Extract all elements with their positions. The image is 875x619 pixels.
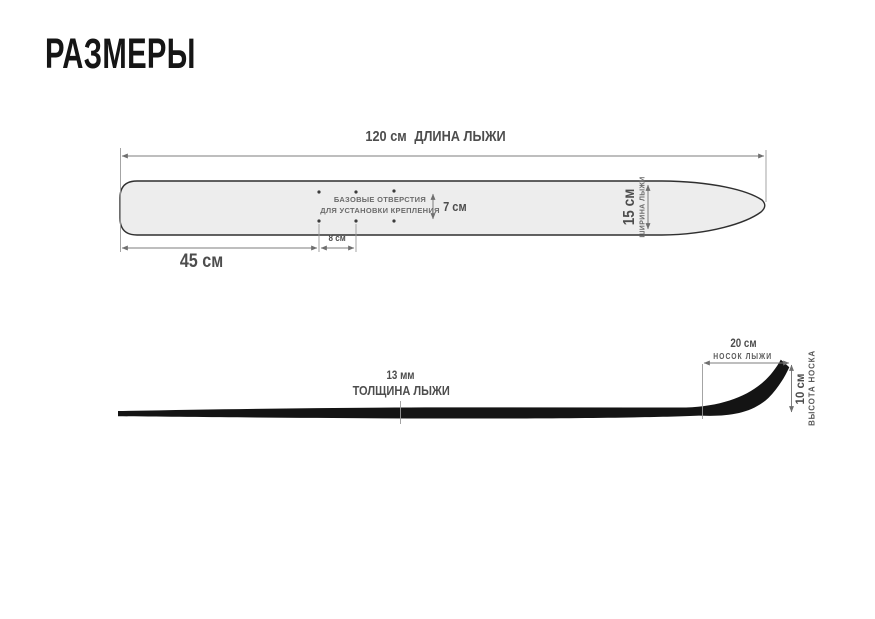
width-value: 15 см	[621, 189, 639, 226]
mounting-holes-note-line2: ДЛЯ УСТАНОВКИ КРЕПЛЕНИЯ	[310, 206, 450, 217]
mounting-holes-note-line1: БАЗОВЫЕ ОТВЕРСТИЯ	[310, 195, 450, 206]
mounting-hole-dot	[317, 190, 320, 193]
mounting-holes-note: БАЗОВЫЕ ОТВЕРСТИЯ ДЛЯ УСТАНОВКИ КРЕПЛЕНИ…	[310, 195, 450, 216]
mounting-hole-dot	[354, 190, 357, 193]
hole-spacing-value: 8 см	[328, 233, 345, 244]
mounting-hole-dot	[317, 219, 320, 222]
width-caption: ШИРИНА ЛЫЖИ	[643, 207, 704, 214]
hole-spacing-label: 8 см	[307, 233, 367, 244]
mounting-hole-dot	[392, 219, 395, 222]
ski-dimensions-diagram: РАЗМЕРЫ	[0, 0, 875, 619]
tail-offset-value: 45 см	[180, 251, 223, 273]
thickness-caption: ТОЛЩИНА ЛЫЖИ	[331, 383, 471, 398]
tip-length-value-label: 20 см	[673, 338, 813, 350]
tip-height-caption: ВЫСОТА НОСКА	[812, 388, 875, 397]
tip-length-caption: НОСОК ЛЫЖИ	[673, 352, 813, 361]
mounting-hole-dot	[354, 219, 357, 222]
thickness-value-label: 13 мм	[331, 370, 471, 382]
length-caption: ДЛИНА ЛЫЖИ	[415, 128, 506, 145]
length-dimension-label: 120 смДЛИНА ЛЫЖИ	[286, 128, 586, 145]
mounting-hole-dot	[392, 189, 395, 192]
tail-offset-label: 45 см	[127, 251, 277, 273]
diagram-drawing	[0, 0, 875, 619]
length-value: 120 см	[366, 128, 407, 145]
